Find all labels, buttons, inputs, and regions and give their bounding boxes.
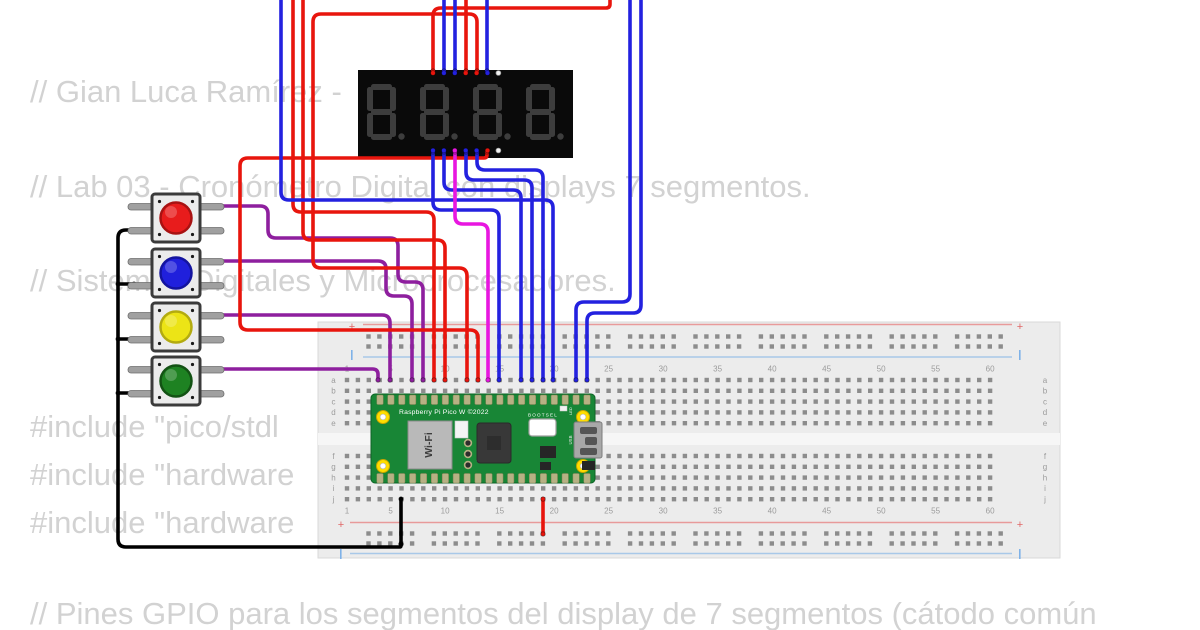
button-cap-red[interactable] (161, 203, 192, 234)
hole (737, 454, 741, 458)
hole (944, 465, 948, 469)
hole (868, 399, 872, 403)
plus-mark: + (1017, 519, 1023, 531)
hole (770, 378, 774, 382)
pico-pin-pad[interactable] (573, 474, 579, 484)
hole (966, 378, 970, 382)
hole (792, 421, 796, 425)
pico-pin-pad[interactable] (518, 474, 524, 484)
pico-pin-pad[interactable] (399, 474, 405, 484)
hole (966, 344, 970, 348)
hole (868, 454, 872, 458)
display-pin[interactable] (463, 148, 468, 153)
hole (901, 465, 905, 469)
hole (759, 421, 763, 425)
pico-pin-pad[interactable] (420, 395, 426, 405)
hole (781, 486, 785, 490)
hole (519, 531, 523, 535)
hole (868, 421, 872, 425)
hole (846, 531, 850, 535)
display-pin[interactable] (485, 71, 490, 76)
column-number: 30 (659, 507, 668, 516)
segment (371, 109, 392, 115)
hole (770, 454, 774, 458)
column-number: 10 (441, 507, 450, 516)
hole (879, 378, 883, 382)
hole (639, 475, 643, 479)
hole (726, 334, 730, 338)
hole (824, 399, 828, 403)
pushbutton-green[interactable] (128, 357, 224, 405)
segment (390, 87, 396, 111)
wire-end (519, 378, 523, 382)
hole (606, 334, 610, 338)
hole (759, 378, 763, 382)
hole (508, 531, 512, 535)
hole (868, 541, 872, 545)
hole (857, 410, 861, 414)
pico-pin-pad[interactable] (518, 395, 524, 405)
hole (639, 486, 643, 490)
hole (377, 334, 381, 338)
hole (890, 454, 894, 458)
display-pin[interactable] (442, 71, 447, 76)
hole (617, 475, 621, 479)
hole (705, 497, 709, 501)
pico-pin-pad[interactable] (562, 474, 568, 484)
row-letter: h (1043, 473, 1047, 482)
hole (890, 531, 894, 535)
hole (955, 541, 959, 545)
hole (835, 399, 839, 403)
display-pin[interactable] (496, 71, 501, 76)
segment (371, 134, 392, 140)
hole (846, 344, 850, 348)
hole (901, 475, 905, 479)
hole (378, 497, 382, 501)
button-cap-green[interactable] (161, 366, 192, 397)
hole (966, 454, 970, 458)
hole (846, 421, 850, 425)
wire-end (497, 378, 501, 382)
wire-end (421, 378, 425, 382)
button-cap-blue[interactable] (161, 258, 192, 289)
hole (454, 541, 458, 545)
hole (879, 497, 883, 501)
hole (846, 378, 850, 382)
display-pin[interactable] (463, 71, 468, 76)
segment (473, 113, 479, 137)
hole (421, 389, 425, 393)
hole (748, 454, 752, 458)
hole (955, 454, 959, 458)
hole (846, 389, 850, 393)
hole (999, 334, 1003, 338)
button-screw (191, 288, 194, 291)
pico-title: Raspberry Pi Pico W ©2022 (399, 408, 489, 416)
pico-pin-pad[interactable] (584, 474, 590, 484)
pico-pin-pad[interactable] (562, 395, 568, 405)
hole (835, 486, 839, 490)
pico-pin-pad[interactable] (442, 474, 448, 484)
hole (345, 389, 349, 393)
hole (835, 389, 839, 393)
hole (759, 531, 763, 535)
pico-pin-pad[interactable] (442, 395, 448, 405)
hole (835, 475, 839, 479)
hole (443, 389, 447, 393)
hole (901, 410, 905, 414)
hole (606, 531, 610, 535)
hole (410, 541, 414, 545)
hole (781, 378, 785, 382)
hole (770, 389, 774, 393)
pushbutton-blue[interactable] (128, 249, 224, 297)
segment (477, 134, 498, 140)
hole (596, 497, 600, 501)
hole (672, 465, 676, 469)
pico-pin-pad[interactable] (529, 395, 535, 405)
pico-pin-pad[interactable] (540, 395, 546, 405)
pico-pin-pad[interactable] (508, 395, 514, 405)
hole (596, 486, 600, 490)
minus-mark (1019, 549, 1021, 559)
usb-contact (580, 427, 597, 434)
hole (737, 475, 741, 479)
button-leg (198, 367, 224, 374)
segment (420, 87, 426, 111)
segment (424, 109, 445, 115)
hole (399, 344, 403, 348)
hole (487, 497, 491, 501)
hole (792, 475, 796, 479)
pico-pin-pad[interactable] (497, 474, 503, 484)
hole (683, 421, 687, 425)
hole (846, 486, 850, 490)
display-pin[interactable] (452, 148, 457, 153)
hole (824, 531, 828, 535)
pico-pin-pad[interactable] (475, 474, 481, 484)
hole (530, 531, 534, 535)
hole (672, 389, 676, 393)
hole (399, 334, 403, 338)
segment (496, 113, 502, 137)
hole (770, 531, 774, 535)
hole (628, 334, 632, 338)
display-pin[interactable] (474, 71, 479, 76)
hole (563, 486, 567, 490)
pushbutton-yellow[interactable] (128, 303, 224, 351)
seven-segment-display[interactable] (358, 70, 573, 158)
hole (944, 497, 948, 501)
pushbutton-red[interactable] (128, 194, 224, 242)
pico-pin-pad[interactable] (409, 395, 415, 405)
pico-pin-pad[interactable] (377, 474, 383, 484)
row-letter: a (331, 376, 336, 385)
hole (922, 344, 926, 348)
segment (367, 87, 373, 111)
hole (868, 475, 872, 479)
hole (617, 421, 621, 425)
hole (944, 378, 948, 382)
hole (748, 399, 752, 403)
hole (726, 378, 730, 382)
hole (792, 497, 796, 501)
hole (650, 389, 654, 393)
hole (694, 410, 698, 414)
hole (748, 378, 752, 382)
hole (715, 344, 719, 348)
hole (672, 531, 676, 535)
hole (345, 465, 349, 469)
pico-pin-pad[interactable] (497, 395, 503, 405)
hole (661, 344, 665, 348)
column-number: 55 (931, 365, 940, 374)
plus-mark: + (1017, 321, 1023, 333)
pico-pin-pad[interactable] (420, 474, 426, 484)
hole (857, 475, 861, 479)
wire-end (486, 378, 490, 382)
pico-w-board[interactable]: Raspberry Pi Pico W ©2022 Wi-Fi DEBUG BO… (371, 394, 602, 483)
hole (672, 497, 676, 501)
hole (377, 344, 381, 348)
pico-pin-pad[interactable] (540, 474, 546, 484)
hole (912, 475, 916, 479)
pico-pin-pad[interactable] (388, 474, 394, 484)
hole (367, 399, 371, 403)
hole (661, 454, 665, 458)
hole (672, 475, 676, 479)
hole (345, 399, 349, 403)
hole (552, 389, 556, 393)
pico-pin-pad[interactable] (529, 474, 535, 484)
pico-pin-pad[interactable] (584, 395, 590, 405)
pico-pin-pad[interactable] (551, 474, 557, 484)
hole (988, 378, 992, 382)
hole (443, 486, 447, 490)
hole (367, 497, 371, 501)
hole (890, 399, 894, 403)
hole (857, 497, 861, 501)
hole (803, 497, 807, 501)
row-letter: g (331, 463, 335, 472)
hole (759, 410, 763, 414)
pico-pin-pad[interactable] (431, 395, 437, 405)
hole (585, 389, 589, 393)
hole (650, 465, 654, 469)
hole (835, 531, 839, 535)
hole (922, 334, 926, 338)
hole (803, 389, 807, 393)
hole (726, 465, 730, 469)
hole (356, 378, 360, 382)
hole (759, 465, 763, 469)
hole (824, 421, 828, 425)
hole (650, 410, 654, 414)
hole (378, 486, 382, 490)
hole (705, 410, 709, 414)
hole (726, 486, 730, 490)
minus-mark (1019, 350, 1021, 360)
segment (549, 113, 555, 137)
bootsel-button[interactable] (529, 419, 556, 436)
hole (497, 389, 501, 393)
hole (748, 497, 752, 501)
hole (879, 421, 883, 425)
hole (388, 497, 392, 501)
hole (901, 399, 905, 403)
wire-display-top-red-up[interactable] (433, 0, 610, 71)
hole (748, 410, 752, 414)
hole (857, 344, 861, 348)
hole (497, 531, 501, 535)
segment (477, 84, 498, 90)
hole (356, 410, 360, 414)
hole (944, 389, 948, 393)
hole (639, 465, 643, 469)
display-pin[interactable] (442, 148, 447, 153)
hole (792, 389, 796, 393)
plus-mark: + (338, 519, 344, 531)
button-leg (198, 228, 224, 235)
display-pin[interactable] (431, 71, 436, 76)
button-screw (158, 342, 161, 345)
hole (508, 344, 512, 348)
hole (432, 497, 436, 501)
column-number: 15 (495, 507, 504, 516)
hole (748, 486, 752, 490)
display-pin[interactable] (431, 148, 436, 153)
column-number: 5 (388, 507, 393, 516)
hole (650, 421, 654, 425)
hole (356, 399, 360, 403)
hole (824, 378, 828, 382)
hole (857, 389, 861, 393)
hole (770, 344, 774, 348)
button-leg (128, 391, 154, 398)
hole (955, 475, 959, 479)
hole (617, 454, 621, 458)
pico-pin-pad[interactable] (464, 395, 470, 405)
hole (923, 389, 927, 393)
hole (573, 531, 577, 535)
display-pin[interactable] (485, 148, 490, 153)
hole (541, 541, 545, 545)
pico-pin-pad[interactable] (464, 474, 470, 484)
hole (454, 344, 458, 348)
hole (933, 497, 937, 501)
hole (705, 389, 709, 393)
hole (857, 486, 861, 490)
hole (977, 454, 981, 458)
pico-pin-pad[interactable] (551, 395, 557, 405)
hole (890, 541, 894, 545)
pico-pin-pad[interactable] (453, 474, 459, 484)
hole (475, 531, 479, 535)
hole (846, 497, 850, 501)
hole (911, 541, 915, 545)
hole (977, 497, 981, 501)
decimal-point (398, 133, 404, 139)
wire-end (541, 378, 545, 382)
pico-pin-pad[interactable] (453, 395, 459, 405)
hole (988, 334, 992, 338)
hole (606, 465, 610, 469)
hole (890, 410, 894, 414)
pico-pin-pad[interactable] (388, 395, 394, 405)
wire-end (116, 337, 120, 341)
hole (792, 454, 796, 458)
pico-pin-pad[interactable] (431, 474, 437, 484)
hole (661, 541, 665, 545)
pico-pin-pad[interactable] (573, 395, 579, 405)
hole (356, 454, 360, 458)
hole (781, 465, 785, 469)
hole (606, 344, 610, 348)
pico-pin-pad[interactable] (486, 395, 492, 405)
pico-pin-pad[interactable] (377, 395, 383, 405)
button-screw (158, 288, 161, 291)
hole (399, 389, 403, 393)
hole (454, 497, 458, 501)
hole (814, 475, 818, 479)
hole (693, 334, 697, 338)
hole (497, 486, 501, 490)
hole (715, 486, 719, 490)
column-number: 25 (604, 365, 613, 374)
button-cap-yellow[interactable] (161, 312, 192, 343)
display-pin[interactable] (474, 148, 479, 153)
hole (639, 531, 643, 535)
hole (835, 497, 839, 501)
hole (693, 541, 697, 545)
pico-pin-pad[interactable] (486, 474, 492, 484)
hole (824, 486, 828, 490)
hole (388, 486, 392, 490)
hole (737, 421, 741, 425)
hole (955, 389, 959, 393)
pico-pin-pad[interactable] (409, 474, 415, 484)
pico-pin-pad[interactable] (508, 474, 514, 484)
hole (672, 541, 676, 545)
hole (585, 497, 589, 501)
hole (923, 465, 927, 469)
hole (868, 531, 872, 535)
hole (683, 378, 687, 382)
smd-component (540, 462, 551, 470)
hole (835, 410, 839, 414)
hole (628, 421, 632, 425)
hole (715, 399, 719, 403)
hole (933, 486, 937, 490)
pico-pin-pad[interactable] (399, 395, 405, 405)
hole (912, 421, 916, 425)
hole (846, 334, 850, 338)
hole (726, 475, 730, 479)
hole (606, 541, 610, 545)
wire-end (399, 497, 403, 501)
hole (694, 454, 698, 458)
wire-end (399, 542, 403, 546)
display-pin[interactable] (452, 71, 457, 76)
button-leg (128, 228, 154, 235)
display-pin[interactable] (496, 148, 501, 153)
hole (824, 475, 828, 479)
hole (737, 531, 741, 535)
hole (464, 541, 468, 545)
pico-pin-pad[interactable] (475, 395, 481, 405)
button-leg (128, 337, 154, 344)
